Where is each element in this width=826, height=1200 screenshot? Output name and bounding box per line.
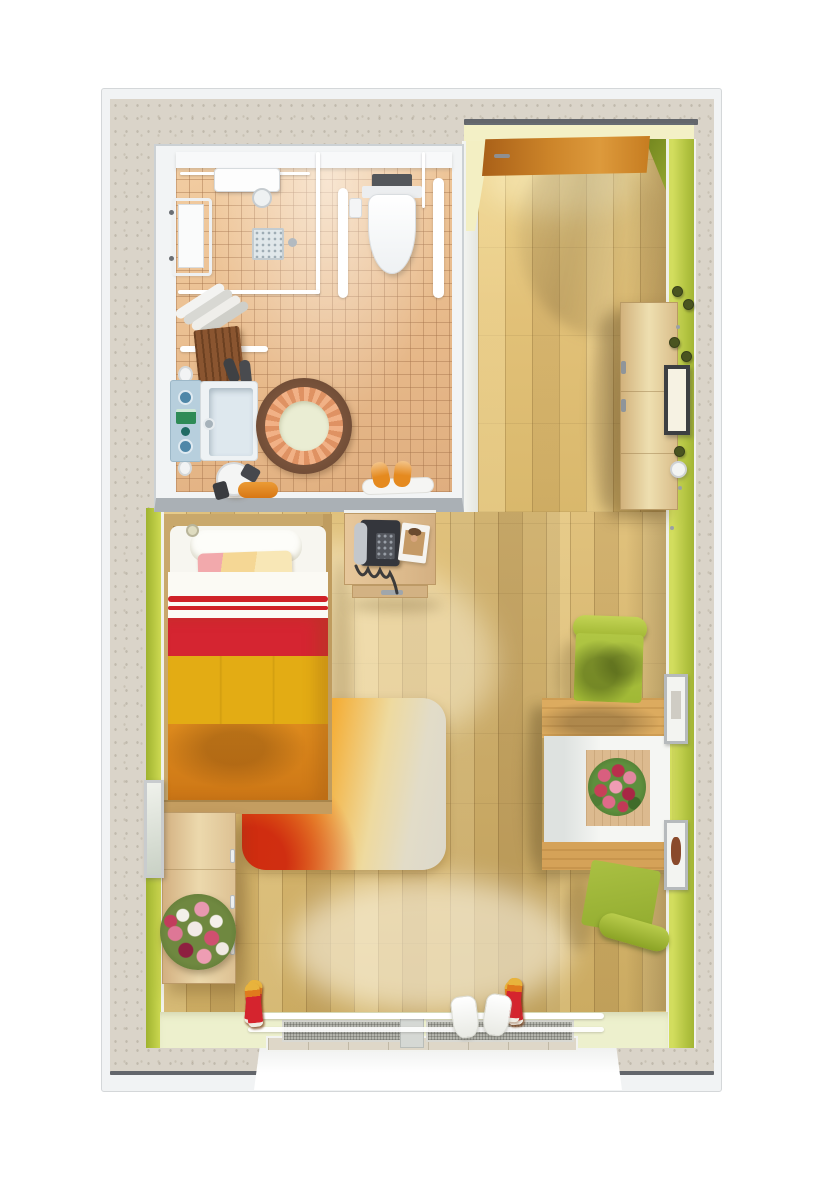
blanket-edge-shade bbox=[168, 618, 328, 800]
apartment-floor-plan-render bbox=[0, 0, 826, 1200]
wash-basin bbox=[200, 381, 258, 461]
fold-seat-panel bbox=[178, 204, 204, 268]
bathroom bbox=[154, 144, 464, 512]
phone-handset bbox=[354, 523, 368, 565]
phone-desk bbox=[344, 510, 436, 600]
wall-picture-bottom bbox=[664, 820, 688, 890]
slipper-row-left bbox=[246, 974, 356, 1024]
window-center-post bbox=[400, 1016, 424, 1048]
curtain-rail-vertical bbox=[316, 152, 320, 294]
cabinet-handle-1 bbox=[621, 361, 626, 374]
round-rug-center bbox=[279, 401, 329, 451]
wall-screw-2 bbox=[678, 486, 682, 490]
vanity-soap bbox=[176, 409, 196, 424]
dining-table bbox=[542, 698, 672, 870]
vanity-knob-top bbox=[178, 390, 193, 405]
phone-cord bbox=[352, 564, 400, 598]
sheet-stripe-2 bbox=[168, 606, 328, 610]
table-top-band bbox=[542, 698, 672, 738]
cabinet-floor-shadow bbox=[592, 315, 620, 510]
coat-hook-3 bbox=[669, 337, 680, 348]
vanity-cabinet bbox=[170, 380, 202, 462]
sideboard-handle-1 bbox=[230, 849, 235, 863]
wall-mirror bbox=[144, 780, 164, 878]
vanity-teal-dot bbox=[181, 427, 190, 436]
grab-bar-right bbox=[433, 178, 444, 298]
sideboard-handle-2 bbox=[230, 895, 235, 909]
entry-door bbox=[482, 136, 650, 176]
seat-hinge-top bbox=[169, 210, 174, 215]
basin-bowl bbox=[209, 388, 253, 456]
shower-unit bbox=[214, 168, 280, 192]
cabinet-handle-2 bbox=[621, 399, 626, 412]
coat-hook-1 bbox=[672, 286, 683, 297]
telephone bbox=[360, 520, 401, 567]
coat-hook-5 bbox=[674, 446, 685, 457]
wall-picture-top bbox=[664, 674, 688, 744]
green-chair-top bbox=[570, 613, 647, 704]
shoe-rack-rail-bottom bbox=[248, 1027, 604, 1032]
coat-hook-4 bbox=[681, 351, 692, 362]
sheet-stripe-1 bbox=[168, 596, 328, 602]
shower-head-icon bbox=[252, 188, 272, 208]
towel-shelf bbox=[170, 292, 244, 330]
wall-pipe bbox=[422, 152, 425, 208]
magazine bbox=[398, 522, 430, 563]
wall-edge-bottom-right bbox=[614, 1071, 714, 1075]
seat-hinge-bottom bbox=[169, 256, 174, 261]
vanity-knob-bottom bbox=[178, 439, 193, 454]
wall-top-left bbox=[110, 99, 466, 147]
faucet-icon bbox=[203, 418, 215, 430]
bathroom-ceiling-strip bbox=[176, 152, 452, 168]
wall-board bbox=[664, 365, 690, 435]
cabinet-seam-2 bbox=[621, 453, 679, 454]
picture-bottom-content bbox=[671, 837, 681, 865]
wall-clock-dot bbox=[670, 461, 687, 478]
bed-pendant bbox=[186, 524, 199, 537]
grab-bar-left bbox=[338, 188, 348, 298]
chair-top-seat bbox=[573, 633, 643, 703]
wall-right bbox=[694, 99, 714, 1075]
single-bed bbox=[164, 510, 332, 816]
wall-board-face bbox=[668, 369, 686, 431]
picture-top-content bbox=[671, 691, 681, 719]
soap-dispenser-bottom bbox=[178, 460, 192, 476]
wall-edge-bottom-left bbox=[110, 1071, 260, 1075]
white-sill bbox=[254, 1048, 622, 1090]
drain-valve bbox=[288, 238, 297, 247]
flower-bouquet bbox=[160, 894, 236, 970]
wall-screw-1 bbox=[676, 325, 680, 329]
rose-bouquet bbox=[588, 758, 646, 816]
door-handle-icon bbox=[494, 154, 510, 158]
wall-screw-3 bbox=[670, 526, 674, 530]
orange-towel bbox=[238, 482, 278, 498]
desk-floor-shadow bbox=[350, 598, 442, 612]
phone-keypad bbox=[376, 533, 395, 559]
floor-drain bbox=[252, 228, 284, 260]
toilet-paper-holder bbox=[349, 198, 362, 218]
coat-hook-2 bbox=[683, 299, 694, 310]
slipper-row-right bbox=[506, 972, 626, 1022]
sideboard-seam-1 bbox=[163, 869, 237, 870]
